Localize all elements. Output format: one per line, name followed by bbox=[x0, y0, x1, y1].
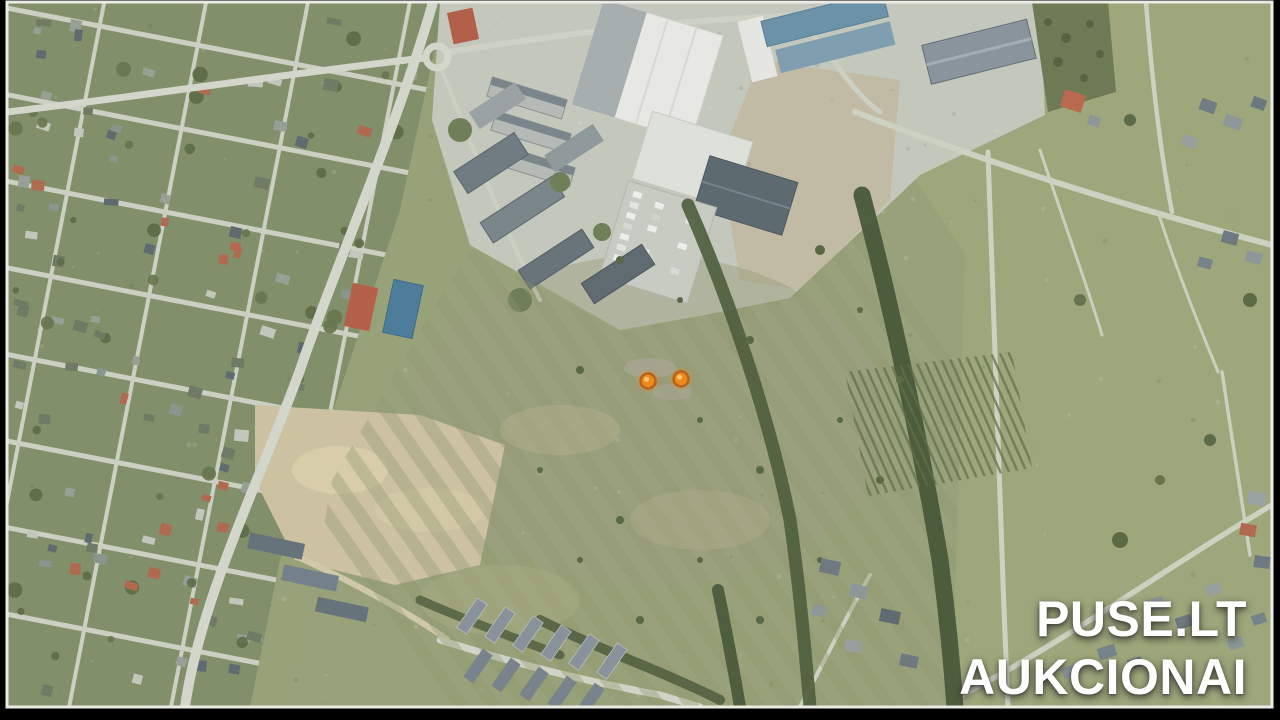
tree bbox=[70, 217, 76, 223]
house bbox=[109, 156, 118, 163]
brand-line-1: PUSE.LT bbox=[959, 590, 1247, 648]
house bbox=[70, 563, 81, 575]
tree bbox=[147, 223, 161, 237]
house bbox=[228, 664, 240, 675]
tree bbox=[7, 582, 22, 597]
tree bbox=[108, 636, 115, 643]
house bbox=[36, 50, 46, 59]
tree bbox=[316, 168, 326, 178]
tree bbox=[116, 62, 131, 77]
tree bbox=[156, 493, 163, 500]
tree bbox=[82, 572, 91, 581]
house bbox=[218, 254, 228, 265]
tree bbox=[41, 316, 54, 329]
house bbox=[132, 356, 140, 365]
house bbox=[83, 107, 93, 115]
tree bbox=[17, 608, 24, 615]
house bbox=[31, 180, 45, 191]
video-frame: PUSE.LT AUKCIONAI bbox=[0, 0, 1280, 720]
house bbox=[74, 128, 84, 138]
tree bbox=[382, 71, 390, 79]
brand-overlay: PUSE.LT AUKCIONAI bbox=[959, 590, 1247, 706]
house bbox=[341, 289, 351, 299]
house bbox=[90, 316, 100, 323]
house bbox=[18, 175, 31, 188]
tree bbox=[346, 31, 361, 46]
house bbox=[323, 78, 339, 92]
house bbox=[198, 424, 210, 434]
tree bbox=[255, 291, 267, 303]
auction-plot-marker-2[interactable] bbox=[670, 368, 692, 390]
tree bbox=[37, 118, 47, 128]
tree bbox=[184, 144, 195, 155]
tree bbox=[13, 287, 19, 293]
brand-line-2: AUKCIONAI bbox=[959, 648, 1247, 706]
auction-plot-marker-1[interactable] bbox=[637, 370, 659, 392]
tree bbox=[8, 121, 22, 135]
field-bare-spot bbox=[630, 490, 770, 550]
house bbox=[161, 217, 169, 226]
tree bbox=[51, 652, 59, 660]
tree bbox=[323, 320, 337, 334]
tree bbox=[355, 239, 365, 249]
house bbox=[230, 242, 242, 252]
tree bbox=[148, 275, 159, 286]
house bbox=[104, 198, 119, 206]
house bbox=[86, 543, 98, 553]
field-bare-spot bbox=[500, 405, 620, 455]
house bbox=[49, 203, 59, 211]
house bbox=[65, 362, 78, 371]
tree bbox=[33, 426, 41, 434]
house bbox=[231, 358, 245, 368]
house bbox=[74, 29, 83, 41]
tree bbox=[242, 229, 250, 237]
house bbox=[36, 19, 51, 26]
tree bbox=[30, 488, 43, 501]
tree bbox=[187, 578, 197, 588]
tree bbox=[57, 258, 65, 266]
tree bbox=[125, 141, 133, 149]
tree bbox=[308, 132, 314, 138]
house bbox=[38, 414, 50, 425]
tree bbox=[202, 466, 216, 480]
tree bbox=[192, 67, 207, 82]
house bbox=[234, 429, 249, 442]
